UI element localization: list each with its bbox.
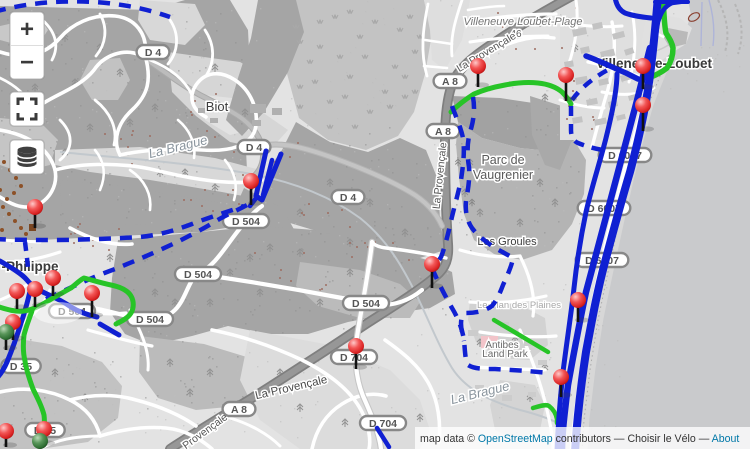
- svg-text:D 4: D 4: [145, 47, 162, 59]
- svg-text:D 704: D 704: [369, 418, 397, 430]
- svg-text:+: +: [20, 16, 34, 43]
- svg-text:Land Park: Land Park: [482, 349, 529, 360]
- svg-text:D 504: D 504: [136, 314, 164, 326]
- svg-text:A 8: A 8: [442, 76, 458, 88]
- svg-text:−: −: [20, 49, 34, 76]
- svg-text:D 504: D 504: [352, 298, 380, 310]
- svg-text:Parc de: Parc de: [481, 153, 524, 167]
- svg-text:D 504: D 504: [184, 269, 212, 281]
- svg-text:map data © OpenStreetMap contr: map data © OpenStreetMap contributors — …: [420, 433, 739, 445]
- svg-text:Villeneuve Loubet-Plage: Villeneuve Loubet-Plage: [463, 16, 582, 28]
- svg-text:A 8: A 8: [435, 126, 451, 138]
- svg-text:D 4: D 4: [246, 142, 263, 154]
- svg-text:Biot: Biot: [206, 99, 229, 114]
- svg-text:D 504: D 504: [232, 216, 260, 228]
- svg-text:D 4: D 4: [340, 192, 357, 204]
- svg-text:Vaugrenier: Vaugrenier: [473, 168, 533, 182]
- svg-text:A 8: A 8: [231, 404, 247, 416]
